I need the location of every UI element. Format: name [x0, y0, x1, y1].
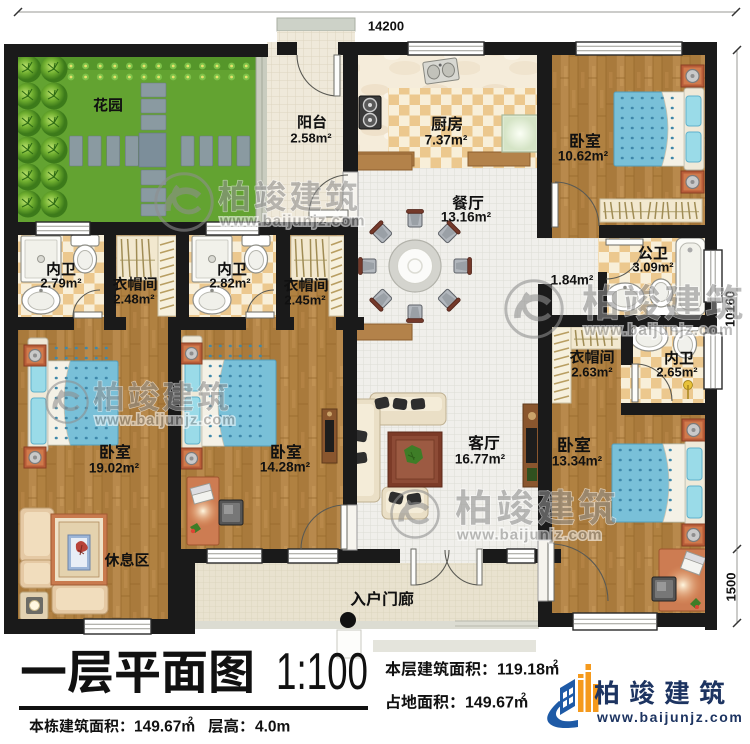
- svg-text:www.baijunjz.com: www.baijunjz.com: [219, 212, 365, 229]
- svg-text:4.0m: 4.0m: [255, 718, 290, 735]
- svg-text:13.16m²: 13.16m²: [441, 210, 492, 225]
- svg-text:2.79m²: 2.79m²: [40, 276, 82, 291]
- svg-text:www.baijunjz.com: www.baijunjz.com: [583, 322, 734, 339]
- svg-text:10.62m²: 10.62m²: [558, 149, 609, 164]
- svg-text:14.28m²: 14.28m²: [260, 460, 311, 475]
- svg-text:2.65m²: 2.65m²: [656, 365, 698, 380]
- svg-text:2.45m²: 2.45m²: [284, 293, 326, 308]
- svg-text:www.baijunjz.com: www.baijunjz.com: [94, 413, 236, 429]
- svg-text:2.58m²: 2.58m²: [290, 131, 332, 146]
- svg-text:2: 2: [188, 715, 193, 725]
- svg-text:2: 2: [521, 691, 526, 701]
- svg-text:www.baijunjz.com: www.baijunjz.com: [456, 527, 602, 544]
- svg-text:14200: 14200: [368, 19, 404, 34]
- svg-text:3.09m²: 3.09m²: [632, 260, 674, 275]
- svg-text:149.67m: 149.67m: [134, 718, 195, 735]
- svg-text:2.48m²: 2.48m²: [113, 292, 155, 307]
- svg-text:119.18m: 119.18m: [497, 662, 559, 679]
- svg-text:2.63m²: 2.63m²: [571, 365, 613, 380]
- svg-text:13.34m²: 13.34m²: [552, 454, 603, 469]
- svg-text:7.37m²: 7.37m²: [425, 133, 468, 148]
- svg-text:16.77m²: 16.77m²: [455, 452, 506, 467]
- svg-text:1500: 1500: [724, 573, 739, 602]
- svg-text:1:100: 1:100: [276, 643, 368, 701]
- svg-text:www.baijunjz.com: www.baijunjz.com: [596, 709, 743, 725]
- svg-text:2: 2: [553, 658, 558, 668]
- svg-text:2.82m²: 2.82m²: [209, 276, 251, 291]
- svg-text:149.67m: 149.67m: [465, 695, 528, 712]
- svg-text:19.02m²: 19.02m²: [89, 461, 140, 476]
